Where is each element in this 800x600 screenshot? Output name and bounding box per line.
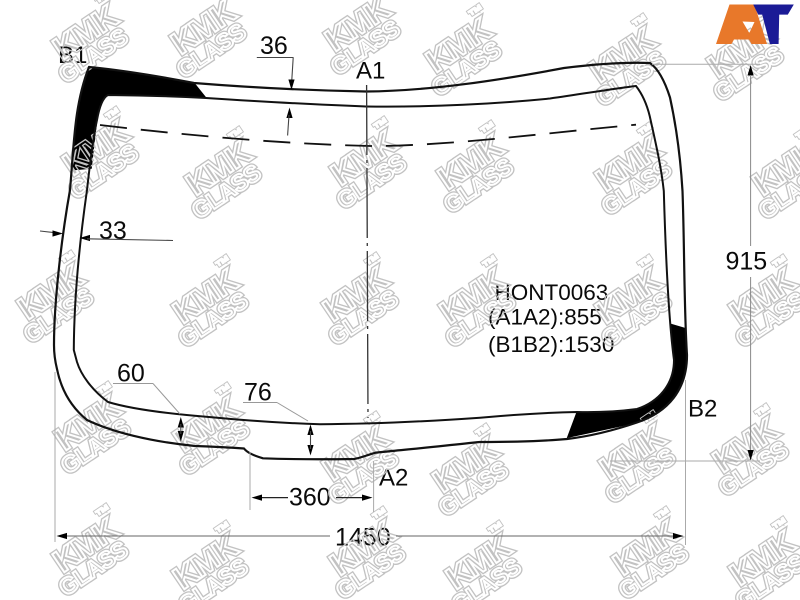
- svg-text:36: 36: [260, 32, 288, 60]
- svg-text:(B1B2):1530: (B1B2):1530: [488, 332, 614, 357]
- svg-text:915: 915: [726, 248, 768, 276]
- svg-text:33: 33: [99, 217, 127, 245]
- svg-text:B2: B2: [688, 396, 717, 423]
